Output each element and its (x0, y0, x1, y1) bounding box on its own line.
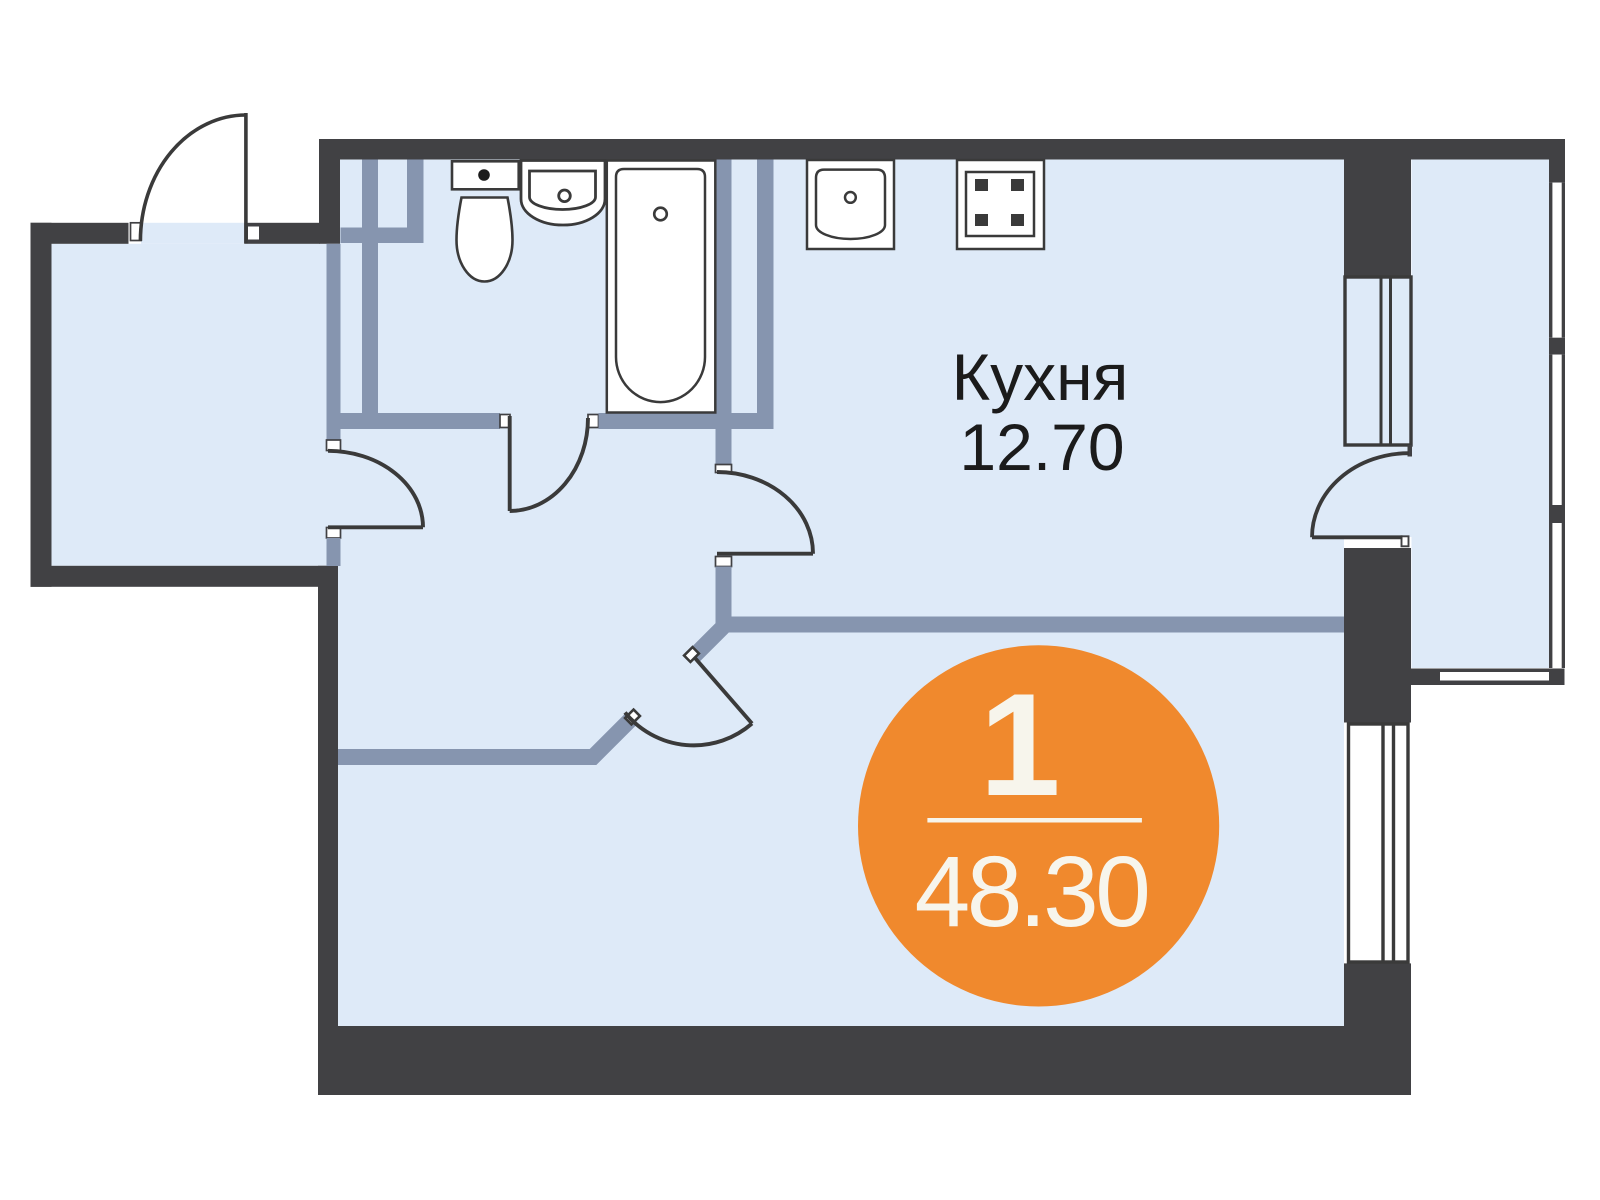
svg-text:Кухня: Кухня (952, 340, 1129, 414)
svg-text:48.30: 48.30 (915, 836, 1148, 948)
svg-text:12.70: 12.70 (959, 410, 1124, 484)
svg-text:1: 1 (979, 663, 1060, 826)
